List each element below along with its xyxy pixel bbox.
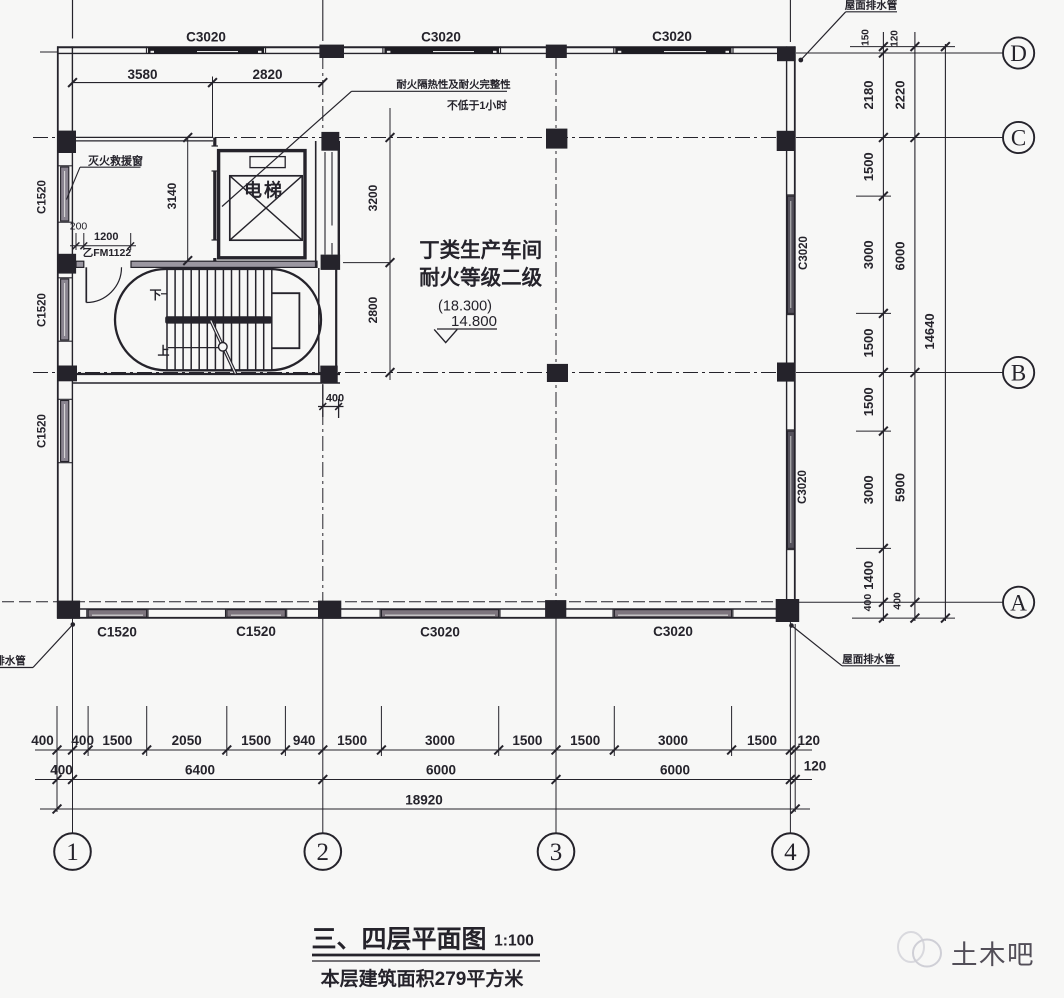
svg-text:C3020: C3020 xyxy=(186,30,226,45)
svg-text:上: 上 xyxy=(157,343,169,358)
svg-text:不低于1小时: 不低于1小时 xyxy=(447,98,507,112)
svg-text:6400: 6400 xyxy=(185,763,215,778)
svg-text:1500: 1500 xyxy=(747,733,777,748)
svg-text:6000: 6000 xyxy=(660,763,690,778)
svg-text:3000: 3000 xyxy=(425,733,455,748)
svg-text:耐火隔热性及耐火完整性: 耐火隔热性及耐火完整性 xyxy=(396,78,511,91)
svg-text:1500: 1500 xyxy=(512,733,542,748)
svg-text:6000: 6000 xyxy=(426,763,456,778)
svg-text:120: 120 xyxy=(890,30,901,47)
svg-text:14640: 14640 xyxy=(922,313,937,349)
svg-text:1500: 1500 xyxy=(861,387,876,416)
svg-text:2050: 2050 xyxy=(172,733,202,748)
svg-text:土木吧: 土木吧 xyxy=(951,940,1035,970)
svg-text:C1520: C1520 xyxy=(37,414,49,448)
svg-text:400: 400 xyxy=(862,594,874,612)
svg-text:940: 940 xyxy=(293,733,316,748)
svg-text:耐火等级二级: 耐火等级二级 xyxy=(419,266,542,290)
svg-text:400: 400 xyxy=(31,733,54,748)
svg-text:14.800: 14.800 xyxy=(451,313,497,330)
svg-text:C3020: C3020 xyxy=(798,236,810,270)
svg-text:排水管: 排水管 xyxy=(0,654,26,667)
svg-text:C3020: C3020 xyxy=(797,470,809,504)
svg-text:120: 120 xyxy=(798,733,821,748)
svg-text:200: 200 xyxy=(70,221,88,233)
svg-text:D: D xyxy=(1010,41,1027,66)
svg-text:三、四层平面图: 三、四层平面图 xyxy=(311,926,486,954)
svg-text:2820: 2820 xyxy=(252,67,282,82)
svg-text:1500: 1500 xyxy=(102,733,132,748)
svg-text:C3020: C3020 xyxy=(652,29,692,44)
svg-text:乙FM1122: 乙FM1122 xyxy=(83,247,132,259)
svg-text:400: 400 xyxy=(326,393,344,405)
svg-text:屋面排水管: 屋面排水管 xyxy=(842,653,895,666)
svg-text:B: B xyxy=(1011,361,1026,386)
svg-text:C3020: C3020 xyxy=(420,625,460,640)
svg-text:1200: 1200 xyxy=(94,231,118,243)
svg-text:C: C xyxy=(1011,126,1026,151)
svg-text:1400: 1400 xyxy=(861,561,876,590)
svg-text:6000: 6000 xyxy=(893,242,908,271)
svg-text:1500: 1500 xyxy=(570,733,600,748)
svg-text:400: 400 xyxy=(50,763,73,778)
svg-text:1500: 1500 xyxy=(861,329,876,358)
svg-text:4: 4 xyxy=(784,839,797,866)
svg-text:电梯: 电梯 xyxy=(244,180,284,201)
svg-text:3000: 3000 xyxy=(658,733,688,748)
svg-text:丁类生产车间: 丁类生产车间 xyxy=(419,238,542,262)
svg-text:C1520: C1520 xyxy=(97,625,137,640)
svg-text:1: 1 xyxy=(66,839,79,866)
svg-text:1500: 1500 xyxy=(861,152,876,181)
svg-text:2220: 2220 xyxy=(893,81,908,110)
svg-text:3: 3 xyxy=(550,839,563,866)
svg-text:3580: 3580 xyxy=(127,67,157,82)
svg-text:5900: 5900 xyxy=(893,473,908,502)
svg-text:1500: 1500 xyxy=(337,733,367,748)
svg-text:3000: 3000 xyxy=(861,475,876,504)
svg-text:C1520: C1520 xyxy=(236,624,276,639)
svg-text:本层建筑面积279平方米: 本层建筑面积279平方米 xyxy=(321,967,525,990)
svg-text:2: 2 xyxy=(317,839,330,866)
svg-text:18920: 18920 xyxy=(405,793,443,808)
svg-text:C3020: C3020 xyxy=(421,30,461,45)
svg-text:3000: 3000 xyxy=(861,240,876,269)
svg-text:C3020: C3020 xyxy=(653,624,693,639)
svg-text:下: 下 xyxy=(149,288,161,302)
svg-text:1500: 1500 xyxy=(241,733,271,748)
svg-text:3200: 3200 xyxy=(366,184,380,211)
svg-text:150: 150 xyxy=(861,29,872,46)
svg-text:屋面排水管: 屋面排水管 xyxy=(845,0,898,12)
svg-text:2800: 2800 xyxy=(366,296,380,323)
svg-text:1:100: 1:100 xyxy=(494,933,534,950)
svg-text:C1520: C1520 xyxy=(37,293,49,327)
svg-text:A: A xyxy=(1010,590,1027,615)
svg-text:灭火救援窗: 灭火救援窗 xyxy=(87,154,143,168)
svg-text:400: 400 xyxy=(892,592,904,610)
svg-text:400: 400 xyxy=(71,733,94,748)
svg-text:2180: 2180 xyxy=(861,81,876,110)
svg-text:3140: 3140 xyxy=(165,182,179,209)
svg-text:C1520: C1520 xyxy=(37,180,49,214)
svg-text:120: 120 xyxy=(804,759,827,774)
